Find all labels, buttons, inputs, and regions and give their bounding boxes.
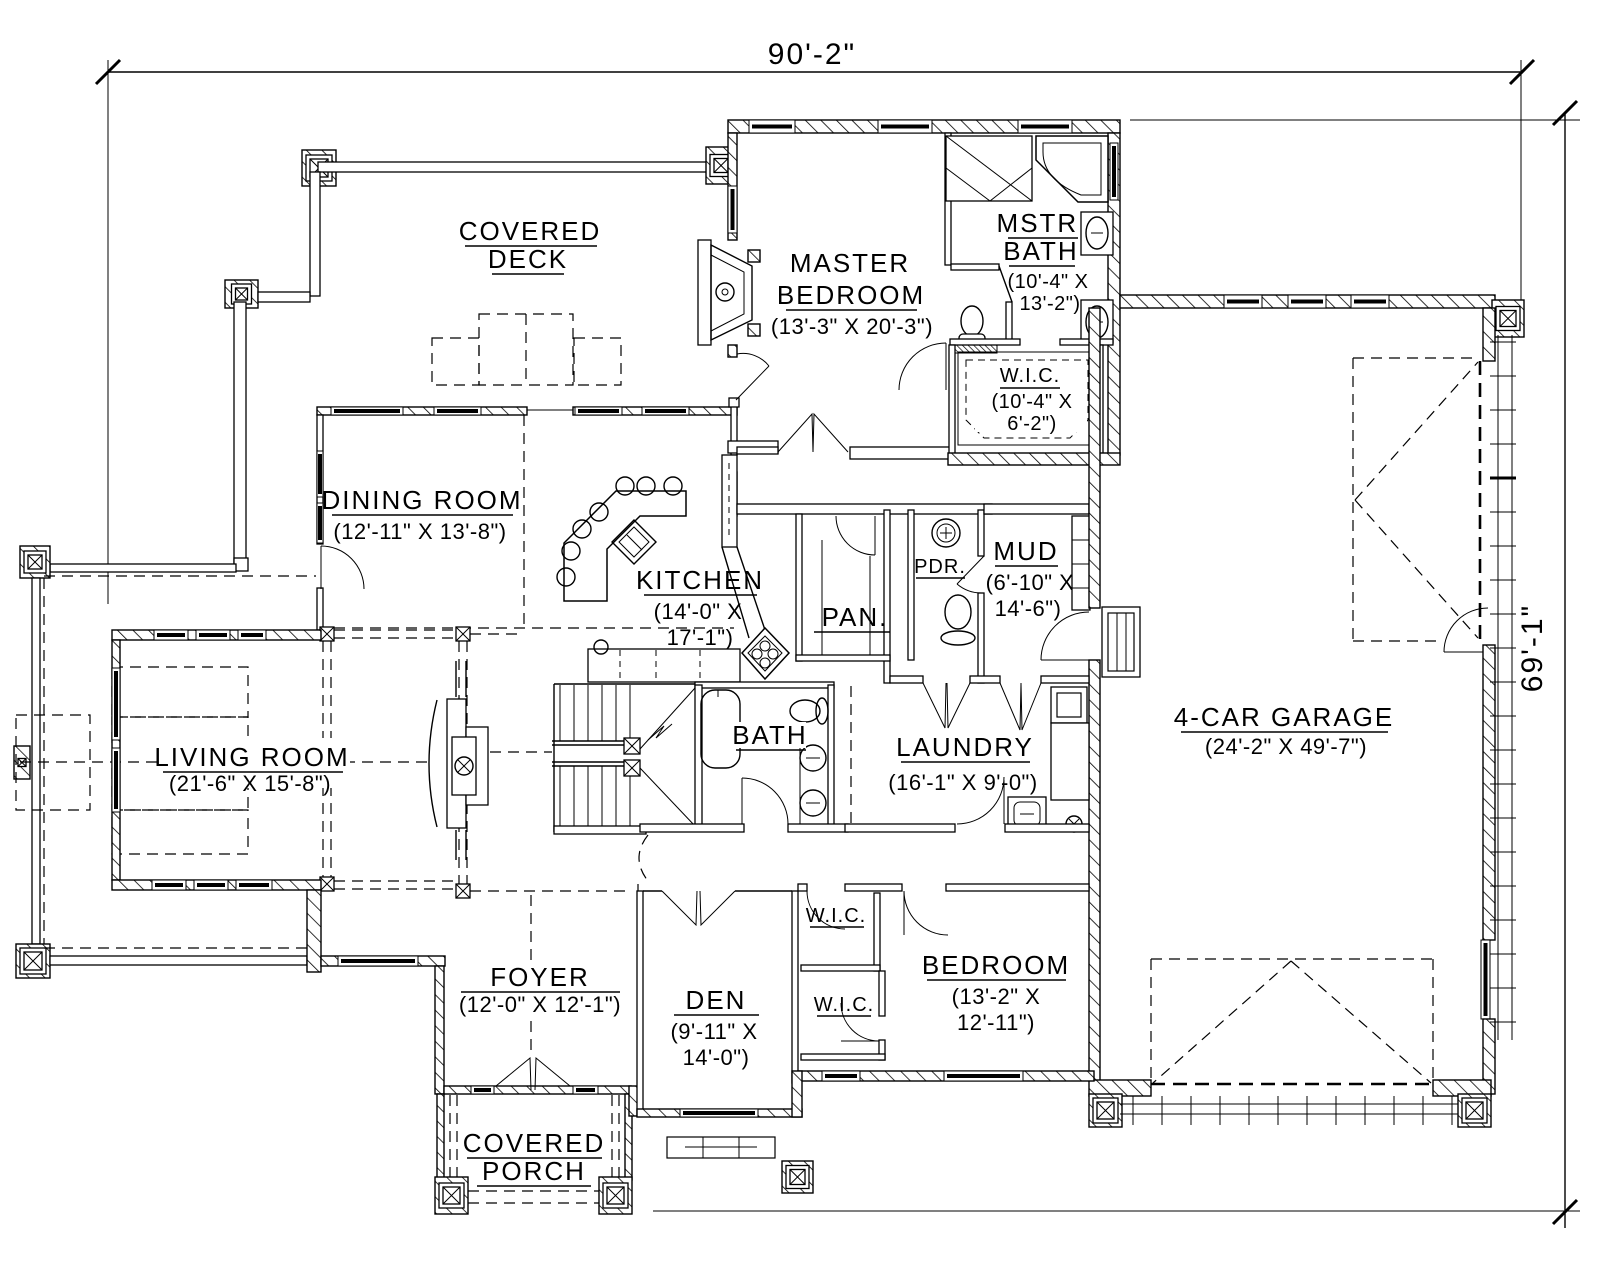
svg-text:COVERED: COVERED [459, 216, 602, 246]
svg-text:(9'-11" X: (9'-11" X [670, 1019, 757, 1044]
svg-text:FOYER: FOYER [490, 962, 590, 992]
svg-text:(24'-2" X 49'-7"): (24'-2" X 49'-7") [1205, 734, 1367, 759]
svg-text:BEDROOM: BEDROOM [777, 280, 925, 310]
svg-text:W.I.C.: W.I.C. [814, 994, 874, 1016]
svg-text:17'-1"): 17'-1") [667, 625, 734, 650]
svg-text:(13'-2" X: (13'-2" X [952, 984, 1041, 1009]
svg-text:14'-6"): 14'-6") [995, 596, 1062, 621]
svg-text:PDR.: PDR. [914, 556, 966, 578]
svg-text:MSTR.: MSTR. [997, 208, 1088, 238]
svg-text:W.I.C.: W.I.C. [1000, 365, 1060, 387]
svg-text:BEDROOM: BEDROOM [922, 950, 1070, 980]
svg-text:DINING ROOM: DINING ROOM [321, 485, 522, 515]
svg-text:69'-1": 69'-1" [1516, 604, 1549, 692]
svg-text:(14'-0" X: (14'-0" X [654, 599, 743, 624]
svg-text:(10'-4" X: (10'-4" X [1007, 271, 1088, 293]
svg-text:12'-11"): 12'-11") [957, 1010, 1035, 1035]
svg-text:(21'-6" X 15'-8"): (21'-6" X 15'-8") [169, 771, 331, 796]
svg-text:MUD: MUD [993, 536, 1058, 566]
svg-text:LAUNDRY: LAUNDRY [896, 732, 1034, 762]
svg-text:(16'-1" X 9'-0"): (16'-1" X 9'-0") [888, 770, 1037, 795]
svg-text:DEN: DEN [686, 985, 747, 1015]
svg-text:W.I.C.: W.I.C. [806, 905, 866, 927]
svg-text:PAN.: PAN. [822, 602, 889, 632]
svg-text:4-CAR GARAGE: 4-CAR GARAGE [1174, 702, 1395, 732]
svg-text:(13'-3" X 20'-3"): (13'-3" X 20'-3") [771, 314, 933, 339]
svg-text:6'-2"): 6'-2") [1007, 413, 1056, 435]
svg-text:MASTER: MASTER [790, 248, 910, 278]
svg-text:13'-2"): 13'-2") [1019, 293, 1080, 315]
svg-text:14'-0"): 14'-0") [683, 1045, 750, 1070]
svg-text:(12'-11" X 13'-8"): (12'-11" X 13'-8") [333, 519, 506, 544]
svg-text:KITCHEN: KITCHEN [636, 565, 764, 595]
svg-text:(12'-0" X 12'-1"): (12'-0" X 12'-1") [459, 992, 621, 1017]
svg-text:DECK: DECK [488, 244, 568, 274]
svg-text:PORCH: PORCH [482, 1156, 586, 1186]
svg-text:COVERED: COVERED [463, 1128, 606, 1158]
svg-text:BATH: BATH [732, 720, 807, 750]
svg-text:(6'-10" X: (6'-10" X [986, 570, 1075, 595]
svg-text:BATH: BATH [1003, 236, 1078, 266]
svg-text:90'-2": 90'-2" [768, 38, 856, 71]
svg-text:LIVING ROOM: LIVING ROOM [154, 742, 349, 772]
svg-text:(10'-4" X: (10'-4" X [991, 391, 1072, 413]
